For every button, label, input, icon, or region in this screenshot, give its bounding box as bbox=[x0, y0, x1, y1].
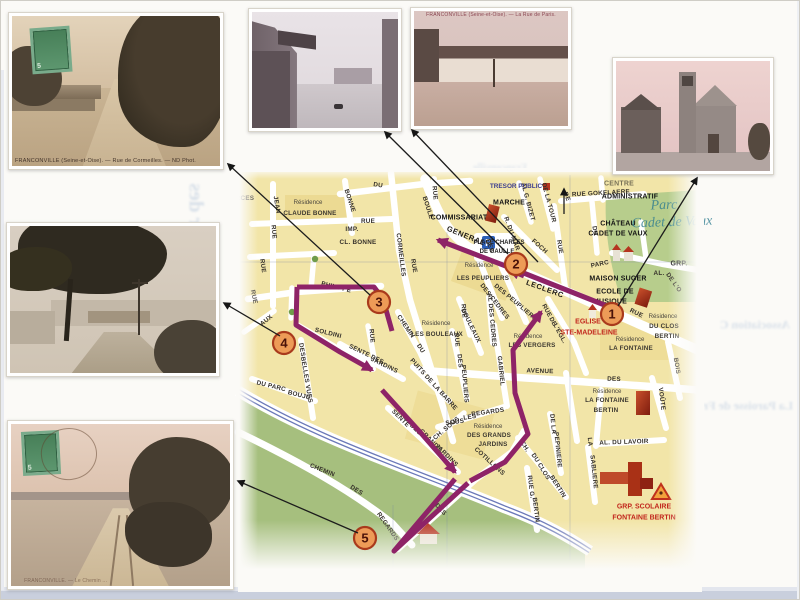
scan-frame bbox=[0, 0, 800, 600]
scanned-guide-page: { "page": {"background": "#fbfaf7", "rou… bbox=[0, 0, 800, 600]
